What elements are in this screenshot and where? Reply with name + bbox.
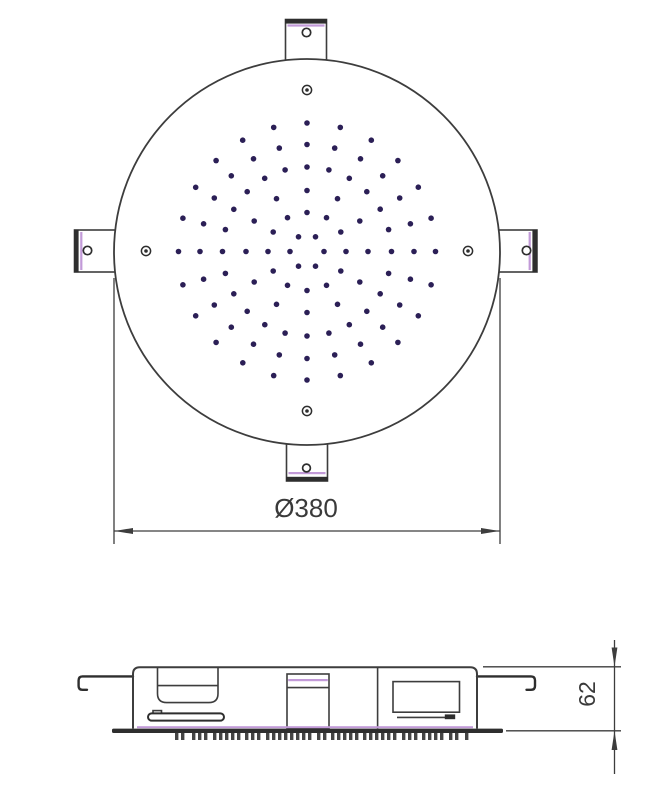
nozzle-tooth	[278, 733, 281, 740]
nozzle-dot	[180, 215, 186, 221]
nozzle-tooth	[284, 733, 287, 740]
nozzle-dot	[212, 302, 218, 308]
nozzle-dot	[332, 352, 338, 358]
nozzle-dot	[347, 176, 353, 182]
nozzle-dot	[193, 185, 199, 191]
nozzle-tooth	[428, 733, 431, 740]
nozzle-dot	[364, 189, 370, 195]
nozzle-dot	[304, 188, 310, 194]
tab-thick-edge	[532, 230, 537, 273]
nozzle-dot	[313, 234, 319, 240]
screw-center	[466, 249, 470, 253]
dim-arrow-bottom	[612, 731, 618, 750]
nozzle-tooth	[440, 733, 443, 740]
nozzle-tooth	[213, 733, 216, 740]
nozzle-dot	[240, 360, 246, 366]
nozzle-dot	[304, 164, 310, 170]
nozzle-dot	[271, 373, 277, 379]
chamber-fitting	[445, 714, 455, 719]
nozzle-dot	[408, 276, 414, 282]
nozzle-tooth	[308, 733, 311, 740]
nozzle-dot	[416, 313, 422, 319]
nozzle-dot	[357, 218, 363, 224]
nozzle-dot	[285, 283, 291, 289]
nozzle-dot	[304, 210, 310, 216]
nozzle-dot	[274, 196, 280, 202]
nozzle-dot	[244, 189, 250, 195]
nozzle-dot	[395, 340, 401, 346]
nozzle-dot	[369, 360, 375, 366]
nozzle-dot	[358, 156, 364, 162]
nozzle-dot	[304, 356, 310, 362]
nozzle-dot	[321, 249, 327, 255]
shower-face-circle	[114, 59, 500, 445]
nozzle-tooth	[245, 733, 248, 740]
nozzle-tooth	[402, 733, 405, 740]
nozzle-tooth	[296, 733, 299, 740]
nozzle-tooth	[375, 733, 378, 740]
nozzle-dot	[369, 137, 375, 143]
right-mount-hook	[477, 676, 535, 689]
left-mount-hook	[79, 676, 133, 689]
side-view: 62	[79, 640, 621, 774]
nozzle-dot	[271, 125, 277, 131]
nozzle-tooth	[422, 733, 425, 740]
nozzle-dot	[223, 227, 229, 233]
nozzle-tooth	[355, 733, 358, 740]
nozzle-tooth	[272, 733, 275, 740]
nozzle-tooth	[266, 733, 269, 740]
nozzle-dot	[428, 282, 434, 288]
nozzle-dot	[240, 137, 246, 143]
nozzle-tooth	[434, 733, 437, 740]
nozzle-dot	[282, 330, 288, 336]
nozzle-dot	[277, 352, 283, 358]
nozzle-dot	[395, 158, 401, 164]
nozzle-dot	[364, 309, 370, 315]
nozzle-dot	[380, 324, 386, 330]
nozzle-dot	[377, 206, 383, 212]
dim-arrow-right	[481, 528, 500, 534]
nozzle-dot	[193, 313, 199, 319]
nozzle-dot	[326, 330, 332, 336]
nozzle-dot	[332, 145, 338, 151]
nozzle-tooth	[198, 733, 201, 740]
nozzle-dot	[304, 377, 310, 383]
nozzle-tooth	[363, 733, 366, 740]
nozzle-dot	[304, 310, 310, 316]
nozzle-dot	[251, 218, 257, 224]
nozzle-tooth	[237, 733, 240, 740]
nozzle-tooth	[317, 733, 320, 740]
nozzle-dot	[262, 176, 268, 182]
nozzle-dot	[197, 249, 203, 255]
nozzle-tooth	[465, 733, 468, 740]
nozzle-dot	[335, 196, 341, 202]
nozzle-dot	[231, 207, 237, 213]
screw-center	[305, 88, 309, 92]
nozzle-dot	[213, 158, 219, 164]
nozzle-dot	[277, 145, 283, 151]
nozzle-dot	[251, 341, 257, 347]
nozzle-dot	[397, 302, 403, 308]
nozzle-tooth	[381, 733, 384, 740]
nozzle-dot	[377, 291, 383, 297]
nozzle-dot	[386, 227, 392, 233]
tab-thick-edge	[285, 19, 327, 24]
nozzle-tooth	[393, 733, 396, 740]
nozzle-dot	[201, 221, 207, 227]
tab-bolt-hole	[83, 246, 91, 254]
nozzle-dot	[411, 249, 417, 255]
nozzle-dot	[304, 333, 310, 339]
diameter-label: Ø380	[274, 493, 338, 523]
nozzle-tooth	[387, 733, 390, 740]
nozzle-tooth	[343, 733, 346, 740]
nozzle-tooth	[251, 733, 254, 740]
nozzle-tooth	[204, 733, 207, 740]
nozzle-tooth	[369, 733, 372, 740]
tab-bolt-hole	[303, 464, 311, 472]
nozzle-dot	[270, 268, 276, 274]
drawing-canvas: Ø380 62	[0, 0, 661, 800]
nozzle-dot	[408, 221, 414, 227]
nozzle-dot	[243, 249, 249, 255]
dim-arrow-top	[612, 648, 618, 667]
tab-accent-line	[80, 232, 82, 270]
nozzle-dot	[270, 229, 276, 235]
tab-bolt-hole	[302, 28, 310, 36]
right-chamber	[393, 682, 460, 713]
shower-head-technical-drawing: Ø380 62	[0, 0, 661, 800]
nozzle-dot	[229, 173, 235, 179]
nozzle-tooth	[290, 733, 293, 740]
nozzle-dot	[380, 173, 386, 179]
nozzle-dot	[304, 288, 310, 294]
nozzle-dot	[343, 249, 349, 255]
nozzle-dot	[326, 167, 332, 173]
nozzle-tooth	[181, 733, 184, 740]
slot	[148, 713, 224, 720]
nozzle-dot	[231, 291, 237, 297]
nozzle-dot	[265, 249, 271, 255]
nozzle-dot	[357, 279, 363, 285]
nozzle-tooth	[331, 733, 334, 740]
screw-hole	[141, 246, 150, 255]
nozzle-dot	[212, 195, 218, 201]
nozzle-dot	[335, 302, 341, 308]
nozzle-dot	[296, 263, 302, 269]
screw-hole	[463, 246, 472, 255]
nozzle-dot	[313, 263, 319, 269]
nozzle-dot	[244, 309, 250, 315]
nozzle-tooth	[302, 733, 305, 740]
base-accent-line	[137, 726, 473, 728]
nozzle-tooth	[219, 733, 222, 740]
nozzle-dot	[262, 322, 268, 328]
screw-center	[144, 249, 148, 253]
nozzle-tooth	[225, 733, 228, 740]
nozzle-dot	[304, 142, 310, 148]
nozzle-tooth	[349, 733, 352, 740]
nozzle-tooth	[175, 733, 178, 740]
screw-hole	[302, 406, 311, 415]
nozzle-tooth	[192, 733, 195, 740]
tab-thick-edge	[286, 477, 328, 482]
tab-bolt-hole	[522, 246, 530, 254]
height-dimension: 62	[483, 640, 621, 774]
tab-thick-edge	[74, 230, 79, 273]
nozzle-dot	[282, 167, 288, 173]
nozzle-dot	[358, 341, 364, 347]
nozzle-tooth	[455, 733, 458, 740]
nozzle-dot	[324, 215, 330, 221]
nozzle-dot	[251, 156, 257, 162]
nozzle-tooth	[337, 733, 340, 740]
nozzle-tooth	[408, 733, 411, 740]
nozzle-dot	[304, 120, 310, 126]
nozzle-dot	[347, 322, 353, 328]
nozzle-dot	[365, 249, 371, 255]
nozzle-tooth	[257, 733, 260, 740]
nozzle-dot	[220, 249, 226, 255]
nozzle-dot	[285, 215, 291, 221]
nozzle-dot	[386, 271, 392, 277]
nozzle-dot	[397, 195, 403, 201]
top-view: Ø380	[74, 19, 537, 544]
screw-hole	[302, 85, 311, 94]
nozzle-teeth	[175, 733, 468, 740]
tab-accent-line	[288, 24, 325, 26]
nozzle-dot	[433, 249, 439, 255]
nozzle-dot	[324, 283, 330, 289]
nozzle-dot	[338, 125, 344, 131]
dim-arrow-left	[115, 528, 134, 534]
nozzle-tooth	[323, 733, 326, 740]
inlet-block	[287, 674, 329, 729]
nozzle-dot	[416, 184, 422, 190]
nozzle-dot	[338, 229, 344, 235]
nozzle-tooth	[231, 733, 234, 740]
nozzle-dot	[389, 249, 395, 255]
nozzle-dot	[180, 282, 186, 288]
nozzle-dot	[338, 373, 344, 379]
base-plate	[112, 729, 503, 733]
nozzle-dot	[296, 234, 302, 240]
nozzle-dot	[274, 302, 280, 308]
nozzle-dot	[338, 268, 344, 274]
nozzle-dot	[213, 340, 219, 346]
nozzle-tooth	[414, 733, 417, 740]
nozzle-dot	[176, 249, 182, 255]
nozzle-tooth	[449, 733, 452, 740]
nozzle-dot	[223, 271, 229, 277]
nozzle-dot	[229, 324, 235, 330]
inlet-accent-line	[288, 679, 328, 681]
nozzle-dot	[428, 215, 434, 221]
screw-center	[305, 409, 309, 413]
nozzle-dot	[201, 276, 207, 282]
height-label: 62	[574, 681, 600, 707]
nozzle-dot	[287, 249, 293, 255]
nozzle-dot	[251, 279, 257, 285]
